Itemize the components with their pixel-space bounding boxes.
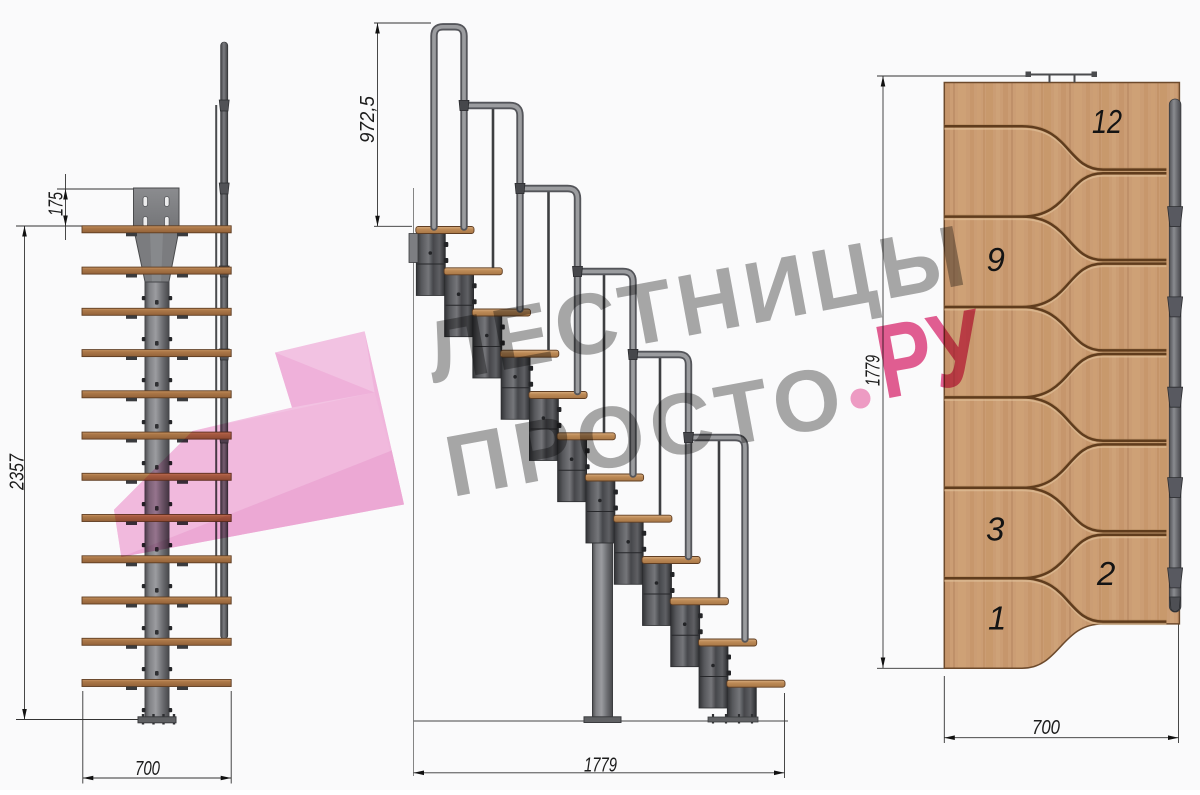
svg-text:1: 1 — [988, 600, 1006, 637]
svg-text:3: 3 — [986, 511, 1005, 548]
svg-text:12: 12 — [1092, 103, 1122, 140]
svg-text:9: 9 — [987, 241, 1005, 278]
svg-text:175: 175 — [46, 191, 68, 216]
svg-text:РУ: РУ — [867, 287, 994, 422]
svg-text:972,5: 972,5 — [357, 95, 379, 143]
svg-text:2: 2 — [1096, 555, 1115, 592]
svg-text:2357: 2357 — [7, 453, 29, 491]
svg-text:1779: 1779 — [584, 755, 617, 777]
svg-text:700: 700 — [135, 758, 160, 780]
svg-text:700: 700 — [1032, 717, 1060, 739]
